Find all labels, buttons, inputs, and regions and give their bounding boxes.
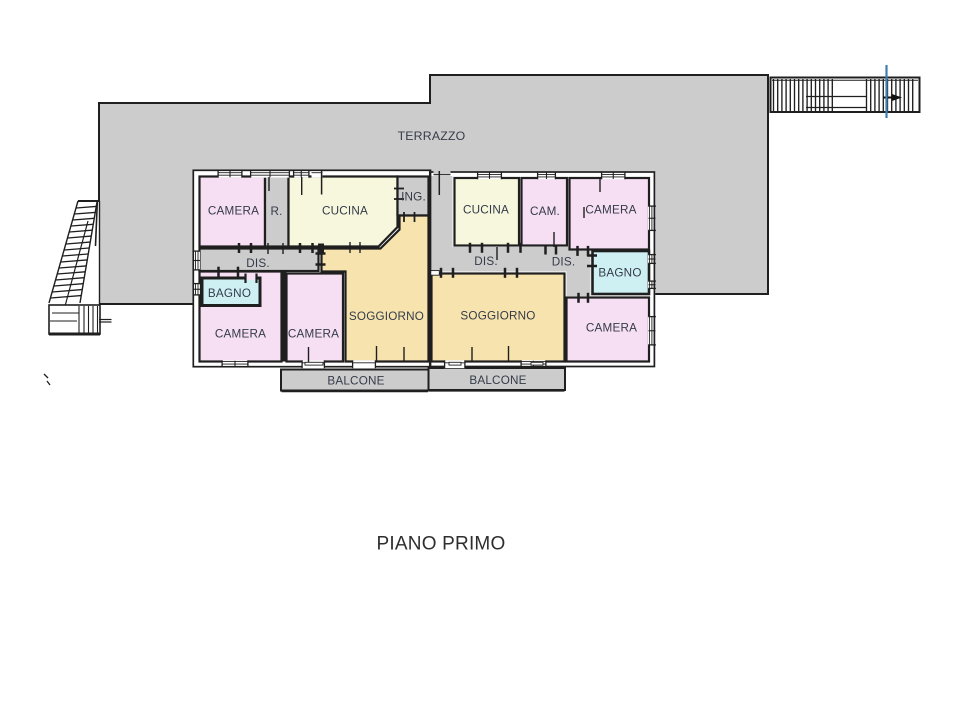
svg-text:BAGNO: BAGNO bbox=[598, 267, 641, 280]
svg-text:BAGNO: BAGNO bbox=[208, 287, 251, 300]
svg-text:CUCINA: CUCINA bbox=[463, 203, 509, 216]
svg-text:CAMERA: CAMERA bbox=[215, 328, 266, 341]
svg-text:CAMERA: CAMERA bbox=[586, 322, 637, 335]
svg-text:ING.: ING. bbox=[401, 190, 426, 203]
svg-text:PIANO PRIMO: PIANO PRIMO bbox=[377, 534, 506, 555]
svg-text:SOGGIORNO: SOGGIORNO bbox=[349, 310, 424, 323]
svg-text:BALCONE: BALCONE bbox=[327, 375, 384, 388]
svg-text:CAMERA: CAMERA bbox=[585, 203, 636, 216]
svg-text:TERRAZZO: TERRAZZO bbox=[398, 129, 466, 143]
svg-text:CAM.: CAM. bbox=[530, 205, 560, 218]
svg-text:CAMERA: CAMERA bbox=[208, 204, 259, 217]
svg-text:DIS.: DIS. bbox=[246, 257, 270, 270]
svg-text:BALCONE: BALCONE bbox=[469, 374, 526, 387]
svg-text:CAMERA: CAMERA bbox=[288, 328, 339, 341]
svg-text:DIS.: DIS. bbox=[474, 255, 498, 268]
svg-text:SOGGIORNO: SOGGIORNO bbox=[460, 310, 535, 323]
svg-text:DIS.: DIS. bbox=[552, 255, 576, 268]
svg-text:CUCINA: CUCINA bbox=[322, 204, 368, 217]
svg-text:R.: R. bbox=[270, 205, 282, 218]
